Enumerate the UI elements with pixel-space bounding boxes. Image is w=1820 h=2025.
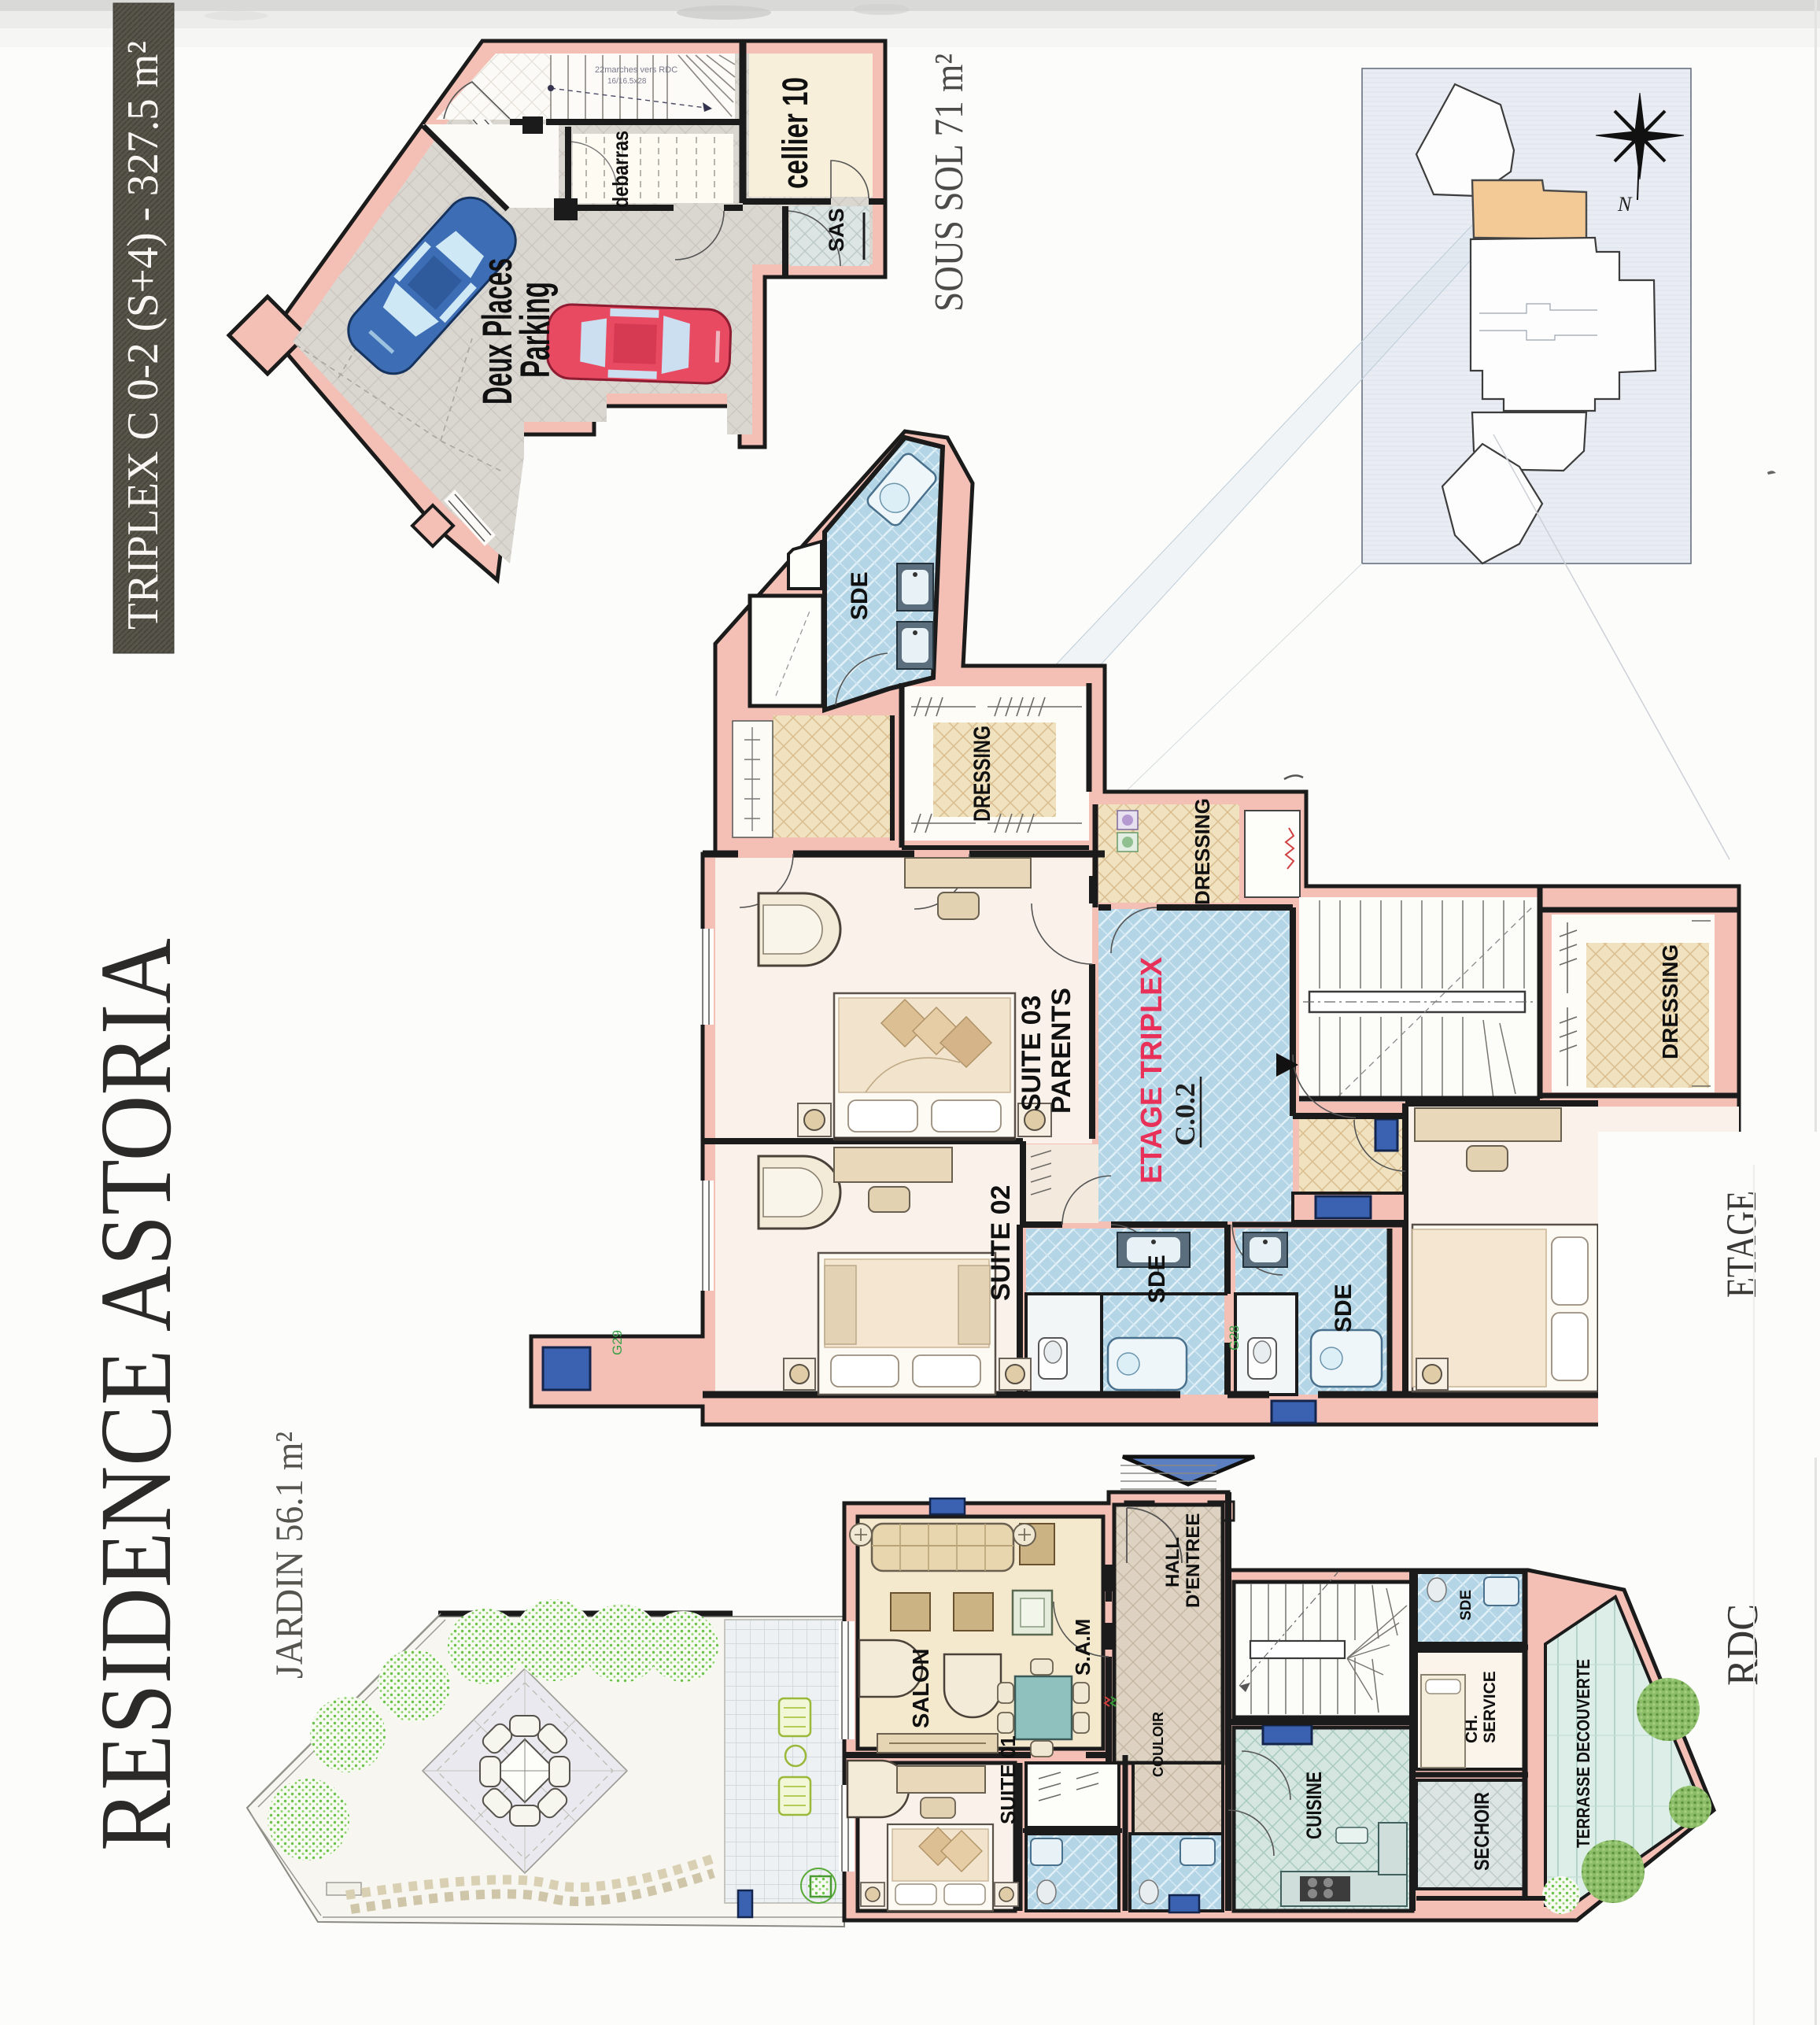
svg-text:TERRASSE DECOUVERTE: TERRASSE DECOUVERTE (1573, 1659, 1593, 1848)
svg-text:CH.: CH. (1463, 1715, 1481, 1743)
svg-text:C.0.2: C.0.2 (1169, 1083, 1201, 1146)
svg-text:SDE: SDE (1144, 1255, 1170, 1303)
svg-text:D'ENTREE: D'ENTREE (1183, 1513, 1204, 1608)
svg-text:SDE: SDE (1458, 1590, 1475, 1620)
svg-text:SDE: SDE (1331, 1284, 1357, 1332)
svg-text:G28: G28 (1227, 1325, 1242, 1351)
svg-text:COULOIR: COULOIR (1150, 1712, 1166, 1777)
svg-text:SDE: SDE (847, 571, 873, 620)
svg-text:DRESSING: DRESSING (1191, 798, 1214, 905)
svg-text:ETAGE TRIPLEX: ETAGE TRIPLEX (1135, 956, 1168, 1184)
svg-text:SALON: SALON (909, 1649, 934, 1729)
svg-text:TRIPLEX C 0-2 (S+4) - 327.5 m²: TRIPLEX C 0-2 (S+4) - 327.5 m² (119, 41, 168, 630)
svg-text:N: N (1617, 193, 1633, 216)
svg-text:22marches vers RDC: 22marches vers RDC (595, 65, 677, 75)
svg-text:cellier 10: cellier 10 (775, 77, 815, 189)
svg-text:RESIDENCE ASTORIA: RESIDENCE ASTORIA (79, 938, 193, 1851)
svg-text:SAS: SAS (825, 208, 848, 252)
svg-text:SERVICE: SERVICE (1481, 1671, 1499, 1743)
svg-text:DRESSING: DRESSING (1658, 944, 1682, 1059)
svg-text:16/16.5x28: 16/16.5x28 (607, 77, 647, 86)
svg-text:SOUS SOL 71 m²: SOUS SOL 71 m² (927, 54, 972, 312)
svg-text:Parking: Parking (512, 282, 559, 378)
svg-text:SUITE 02: SUITE 02 (986, 1185, 1016, 1301)
svg-text:SUITE 01: SUITE 01 (996, 1735, 1020, 1824)
svg-text:SUITE 03: SUITE 03 (1017, 996, 1047, 1111)
svg-text:PARENTS: PARENTS (1047, 988, 1076, 1114)
svg-text:DRESSING: DRESSING (969, 726, 995, 822)
svg-text:JARDIN 56.1 m²: JARDIN 56.1 m² (267, 1432, 311, 1679)
svg-text:HALL: HALL (1162, 1537, 1183, 1587)
svg-text:ETAGE: ETAGE (1718, 1191, 1765, 1298)
svg-text:SECHOIR: SECHOIR (1470, 1792, 1493, 1871)
svg-text:CUISINE: CUISINE (1302, 1772, 1326, 1839)
svg-text:debarras: debarras (608, 131, 633, 208)
svg-text:G29: G29 (610, 1330, 625, 1355)
svg-text:S.A.M: S.A.M (1071, 1619, 1095, 1676)
svg-text:RDC: RDC (1718, 1604, 1767, 1686)
